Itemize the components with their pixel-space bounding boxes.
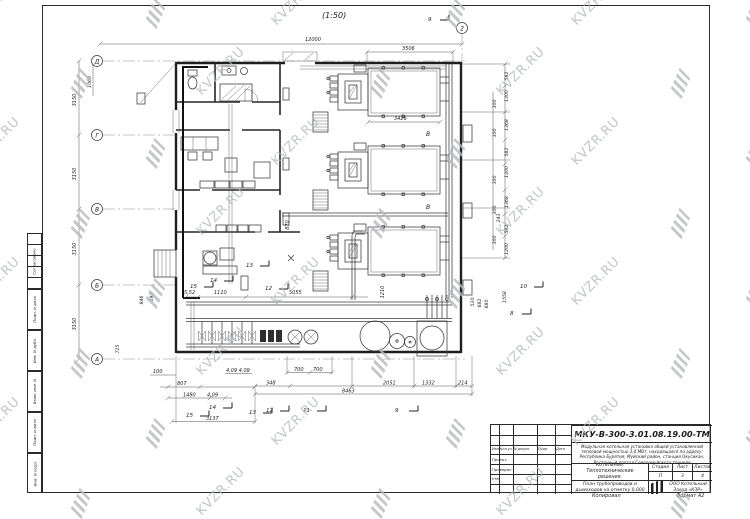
dim-label: 846 bbox=[139, 296, 145, 305]
dim-label: 3137 bbox=[206, 416, 220, 422]
grid-label: 2 bbox=[460, 25, 464, 32]
dim-label: 582 bbox=[504, 225, 510, 234]
sig-header-dokum: N докум. bbox=[513, 445, 537, 455]
stage-header: Стадия bbox=[648, 463, 672, 471]
dim-label: 3150 bbox=[72, 94, 78, 107]
strip-label: Взам. инв. N bbox=[32, 379, 37, 404]
strip-cell: Подп. и дата bbox=[27, 289, 42, 330]
dim-label: 300 bbox=[492, 206, 498, 215]
sig-row-proveril: Проверил bbox=[491, 464, 535, 474]
dim-label: 3150 bbox=[72, 168, 78, 181]
dim-label: 300 bbox=[492, 129, 498, 138]
dim-label: 300 bbox=[492, 176, 498, 185]
dim-label: 1368 bbox=[504, 119, 510, 131]
strip-label: Подп. и дата bbox=[32, 419, 37, 446]
company-cell: ООО Котельный Завод «КЗР» bbox=[648, 480, 712, 494]
strip-label: Инв. N дубл. bbox=[32, 338, 37, 363]
dim-label: 348 bbox=[266, 381, 276, 387]
dim-label: 214 bbox=[458, 381, 468, 387]
strip-cell: Взам. инв. N bbox=[27, 371, 42, 412]
grid-label: В bbox=[95, 206, 99, 213]
flag-label: 9 bbox=[395, 408, 399, 414]
dim-label: 1480 bbox=[183, 393, 196, 399]
dim-label: 725 bbox=[115, 345, 121, 354]
dim-label: 300 bbox=[492, 100, 498, 109]
flag-label: 13 bbox=[246, 263, 254, 269]
section-letter: В bbox=[426, 131, 430, 138]
flag-label: 8 bbox=[510, 311, 514, 317]
flag-label: 10 bbox=[520, 284, 528, 290]
dim-label: 593 bbox=[149, 293, 155, 302]
grid-label: Д bbox=[94, 58, 100, 65]
dim-label: 582 bbox=[504, 72, 510, 81]
sig-row-proekt: Проект. bbox=[491, 454, 535, 464]
strip-label: Согласовано bbox=[32, 248, 37, 274]
dim-label: 700 bbox=[313, 367, 323, 373]
section-flags: 9 15 14 13 12 11 9 10 8 15 14 13 12 bbox=[186, 15, 543, 420]
doc-number: МКУ-В-300-3.01.08.19.00-ТМ bbox=[571, 425, 712, 442]
boiler-units: В В bbox=[313, 65, 449, 291]
dim-label: 8463 bbox=[342, 389, 355, 395]
sheets-value: 4 bbox=[692, 471, 712, 480]
strip-label: Инв. N подл. bbox=[32, 460, 37, 486]
dim-label: 700 bbox=[294, 367, 304, 373]
dim-label: 300 bbox=[492, 236, 498, 245]
dimension-labels: 12000 3506 3150 3150 3150 3150 1060 846 … bbox=[72, 37, 510, 422]
sheet-name: План трубопроводов и дымоходов на отметк… bbox=[571, 480, 648, 494]
project-description: Модульная котельная установка общей уста… bbox=[571, 442, 712, 463]
flag-label: 13 bbox=[249, 410, 257, 416]
building-walls bbox=[137, 52, 472, 353]
dim-label: 12000 bbox=[305, 37, 321, 43]
dim-label: 243 bbox=[496, 214, 502, 223]
dim-label: 5055 bbox=[289, 290, 302, 296]
dim-label: 582 bbox=[504, 148, 510, 157]
sheet-header: Лист bbox=[672, 463, 692, 471]
room-fixtures bbox=[181, 66, 294, 290]
pipework bbox=[183, 64, 452, 350]
dim-label: 1368 bbox=[504, 196, 510, 208]
sheet-value: 3 bbox=[672, 471, 692, 480]
object-name: Котельная. Теплотехнические решения. bbox=[571, 463, 648, 480]
dim-label: 4,09 4,09 bbox=[226, 368, 250, 374]
flag-label: 12 bbox=[265, 286, 273, 292]
flag-label: 11 bbox=[303, 408, 310, 414]
dim-label: 5,52 bbox=[184, 290, 195, 296]
dim-label: 1200 bbox=[504, 243, 510, 255]
dim-label: 3426 bbox=[394, 116, 407, 122]
company-name: ООО Котельный Завод «КЗР» bbox=[666, 482, 710, 493]
dim-label: 682 bbox=[477, 299, 483, 308]
section-letter: В bbox=[426, 204, 430, 211]
flag-label: 15 bbox=[190, 284, 198, 290]
strip-cell: Инв. N подл. bbox=[27, 453, 42, 493]
grid-label: А bbox=[94, 356, 99, 363]
dim-label: 1332 bbox=[422, 381, 435, 387]
dim-label: 2051 bbox=[383, 381, 396, 387]
dim-label: 1210 bbox=[380, 286, 386, 299]
dim-label: 807 bbox=[177, 381, 187, 387]
dim-label: 870 bbox=[285, 220, 291, 230]
sig-header-data: Дата bbox=[555, 445, 571, 455]
strip-cell-soglasovano: Согласовано bbox=[27, 233, 42, 289]
sig-row-utv: Утв. bbox=[491, 474, 535, 484]
company-logo-icon bbox=[651, 480, 664, 494]
dim-label: 1300 bbox=[504, 166, 510, 178]
dim-label: 1558 bbox=[502, 291, 508, 303]
scale-label: (1:50) bbox=[322, 11, 346, 20]
frame-attribute-strip: Согласовано Подп. и дата Инв. N дубл. Вз… bbox=[27, 233, 42, 493]
flag-label: 15 bbox=[186, 413, 194, 419]
flag-label: 14 bbox=[209, 405, 217, 411]
sig-header-podp: Подп. bbox=[537, 445, 555, 455]
dim-label: 3150 bbox=[72, 243, 78, 256]
dim-label: 4,09 bbox=[207, 393, 218, 399]
dim-label: 3150 bbox=[72, 318, 78, 331]
strip-cell: Подп. и дата bbox=[27, 412, 42, 453]
dim-label: 100 bbox=[153, 369, 163, 375]
sheets-header: Листов bbox=[692, 463, 712, 471]
stage-value: П bbox=[648, 471, 672, 480]
title-block: Изм. Кол.уч N докум. Подп. Дата Проект. … bbox=[490, 424, 711, 493]
flag-label: 14 bbox=[210, 278, 218, 284]
dim-label: 530 bbox=[470, 298, 476, 307]
dim-label: 3506 bbox=[402, 46, 415, 52]
sig-header-izm: Изм. bbox=[491, 445, 499, 455]
footer-kopiroval: Копировал bbox=[592, 493, 621, 499]
dim-label: 1300 bbox=[504, 90, 510, 102]
flag-label: 12 bbox=[266, 408, 274, 414]
dim-label: 1060 bbox=[87, 76, 93, 88]
dim-label: 680 bbox=[484, 300, 490, 309]
grid-label: Г bbox=[95, 132, 99, 139]
strip-label: Подп. и дата bbox=[32, 296, 37, 323]
grid-label: Б bbox=[95, 282, 99, 289]
dim-label: 1110 bbox=[214, 290, 227, 296]
flag-label: 9 bbox=[428, 17, 432, 23]
footer-format: Формат А2 bbox=[676, 493, 704, 499]
scanned-drawing-page: { "watermark": { "text": "KVZR.RU", "log… bbox=[0, 0, 750, 500]
sig-header-koluch: Кол.уч bbox=[499, 445, 513, 455]
strip-cell: Инв. N дубл. bbox=[27, 330, 42, 371]
